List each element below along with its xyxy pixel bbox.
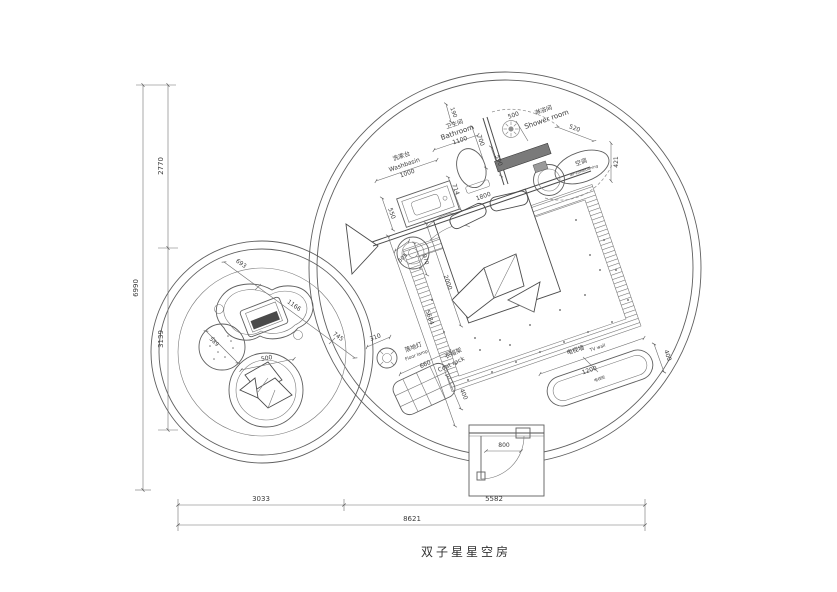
round-toilet [533,161,564,196]
dim-deck-b: 1166 [286,299,303,314]
tv-cabinet-label: 电视柜 [593,374,606,383]
dim-ac-depth: 421 [613,156,620,168]
dim-tv-depth: 400 [662,349,672,362]
wall-niche [346,224,378,274]
dim-washbasin-depth: 550 [386,207,396,220]
dim-shower-width: 500 [507,110,520,120]
dim-overall-height: 6990 [132,279,140,297]
dim-seg-top: 2770 [157,157,165,175]
dim-deck-a: 693 [234,258,248,270]
laptop [239,296,288,337]
floorplan-canvas: 6990 2770 3139 3033 5582 8621 [0,0,837,592]
entrance-vestibule [469,425,544,496]
floorplan-page: 6990 2770 3139 3033 5582 8621 [0,0,837,592]
shower-area [492,109,612,200]
dim-chair-diameter: 500 [260,354,273,363]
dim-wall-diagonal: 1800 [475,191,492,203]
floor-lamp [377,348,397,368]
dim-bed-width: 2000 [442,274,454,291]
dim-tv-width: 1200 [581,365,598,377]
deck-room-wall [151,241,373,463]
dimension-left: 6990 2770 3139 [132,85,178,490]
dim-bottom-right: 5582 [485,495,503,503]
nest-chair [229,353,303,427]
dim-toilet-offset: 714 [450,183,460,196]
dim-overall-width: 8621 [403,515,421,523]
dim-door-width: 800 [498,442,510,449]
dim-deck-c: 745 [331,331,345,343]
dim-seg-bottom: 3139 [157,330,165,348]
dim-bottom-left: 3033 [252,495,270,503]
dim-bathroom-depth: 700 [475,134,485,147]
dim-shower-depth: 590 [493,154,503,167]
dim-ac-side: 520 [568,123,581,134]
dimension-bottom: 3033 5582 8621 [178,495,645,531]
dim-coat-rack-depth: 400 [458,388,469,402]
drawing-title: 双子星星空房 [421,544,511,559]
air-conditioner [551,144,614,191]
